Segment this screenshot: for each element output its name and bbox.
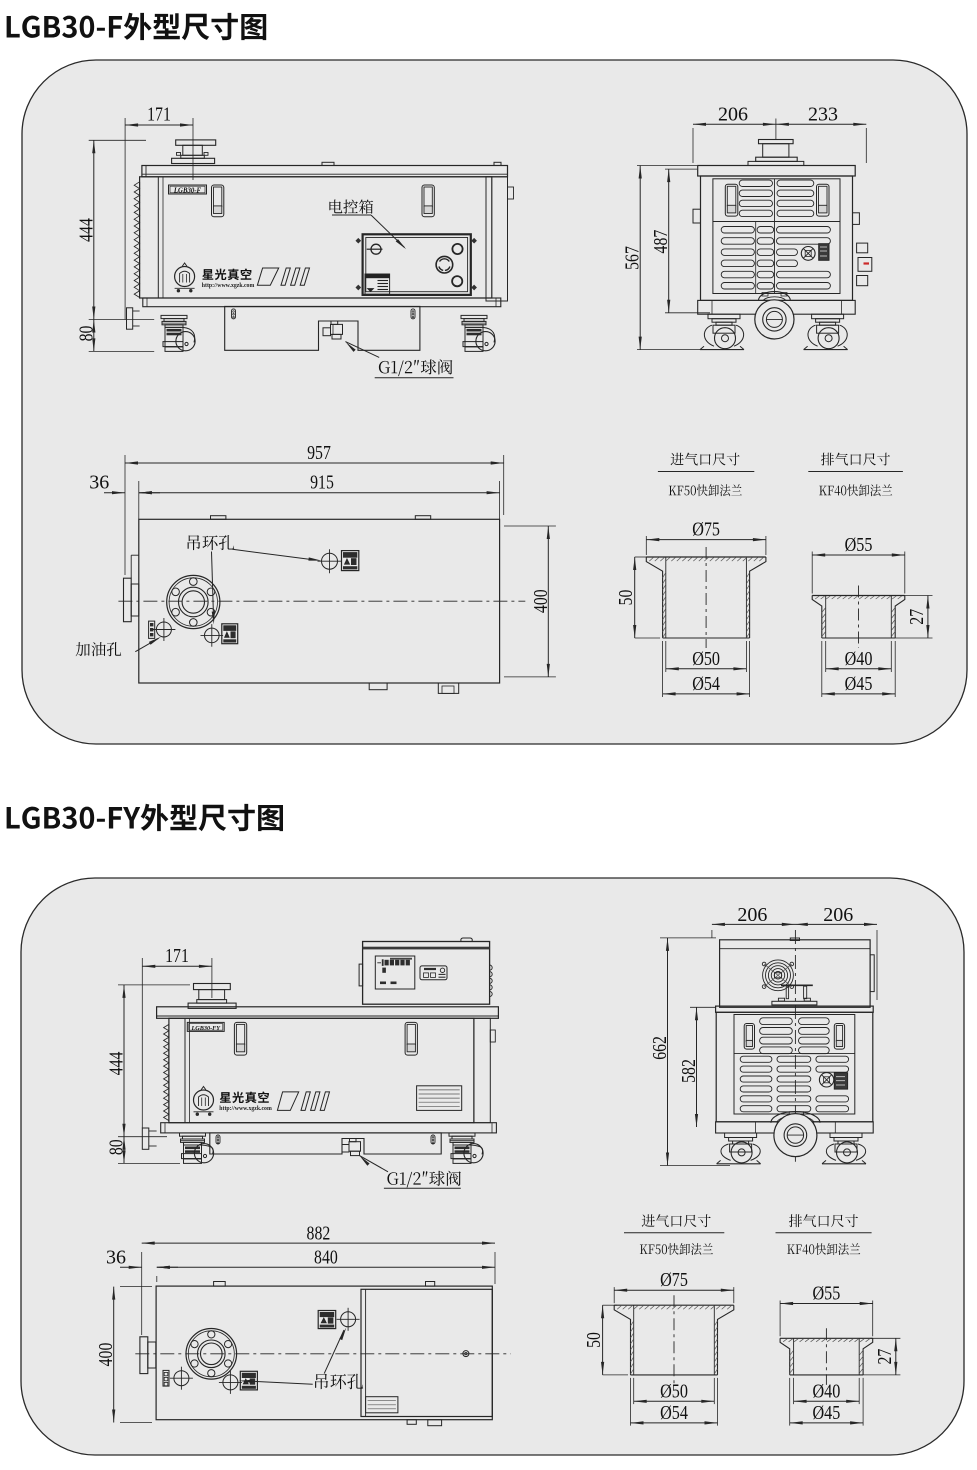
svg-text:206: 206 (737, 904, 767, 926)
svg-text:567: 567 (622, 246, 644, 270)
svg-text:36: 36 (106, 1247, 126, 1269)
svg-text:206: 206 (718, 104, 748, 126)
svg-text:662: 662 (649, 1036, 671, 1060)
svg-text:840: 840 (314, 1247, 338, 1269)
svg-text:50: 50 (615, 590, 637, 606)
svg-text:582: 582 (678, 1059, 700, 1083)
svg-text:80: 80 (75, 326, 97, 342)
svg-text:171: 171 (165, 945, 189, 967)
svg-text:LGB30-FY: LGB30-FY (191, 1025, 222, 1032)
svg-text:Ø55: Ø55 (813, 1283, 841, 1305)
svg-text:http://www.xgzk.com: http://www.xgzk.com (202, 283, 255, 289)
svg-text:Ø50: Ø50 (660, 1380, 688, 1402)
svg-text:Ø54: Ø54 (660, 1402, 688, 1424)
svg-text:27: 27 (906, 609, 928, 625)
svg-text:Ø50: Ø50 (692, 648, 720, 670)
svg-text:LGB30-F: LGB30-F (173, 188, 202, 195)
svg-text:Ø45: Ø45 (813, 1402, 841, 1424)
svg-text:487: 487 (650, 230, 672, 254)
svg-text:Ø75: Ø75 (692, 519, 720, 541)
svg-text:Ø54: Ø54 (692, 673, 720, 695)
svg-text:400: 400 (530, 589, 552, 613)
svg-text:957: 957 (307, 442, 331, 464)
svg-text:206: 206 (823, 904, 853, 926)
svg-text:171: 171 (147, 104, 171, 126)
svg-text:50: 50 (583, 1332, 605, 1348)
svg-text:882: 882 (307, 1223, 331, 1245)
svg-text:915: 915 (310, 472, 334, 494)
svg-text:http://www.xgzk.com: http://www.xgzk.com (219, 1106, 272, 1112)
svg-text:36: 36 (89, 472, 109, 494)
svg-text:Ø75: Ø75 (660, 1269, 688, 1291)
svg-text:Ø55: Ø55 (845, 534, 873, 556)
svg-text:Ø40: Ø40 (845, 648, 873, 670)
svg-text:400: 400 (95, 1343, 117, 1367)
svg-text:27: 27 (874, 1349, 896, 1365)
svg-text:Ø40: Ø40 (813, 1380, 841, 1402)
svg-text:444: 444 (106, 1052, 128, 1076)
svg-text:444: 444 (75, 218, 97, 242)
svg-text:80: 80 (106, 1139, 128, 1155)
svg-text:Ø45: Ø45 (845, 673, 873, 695)
svg-text:233: 233 (808, 104, 838, 126)
